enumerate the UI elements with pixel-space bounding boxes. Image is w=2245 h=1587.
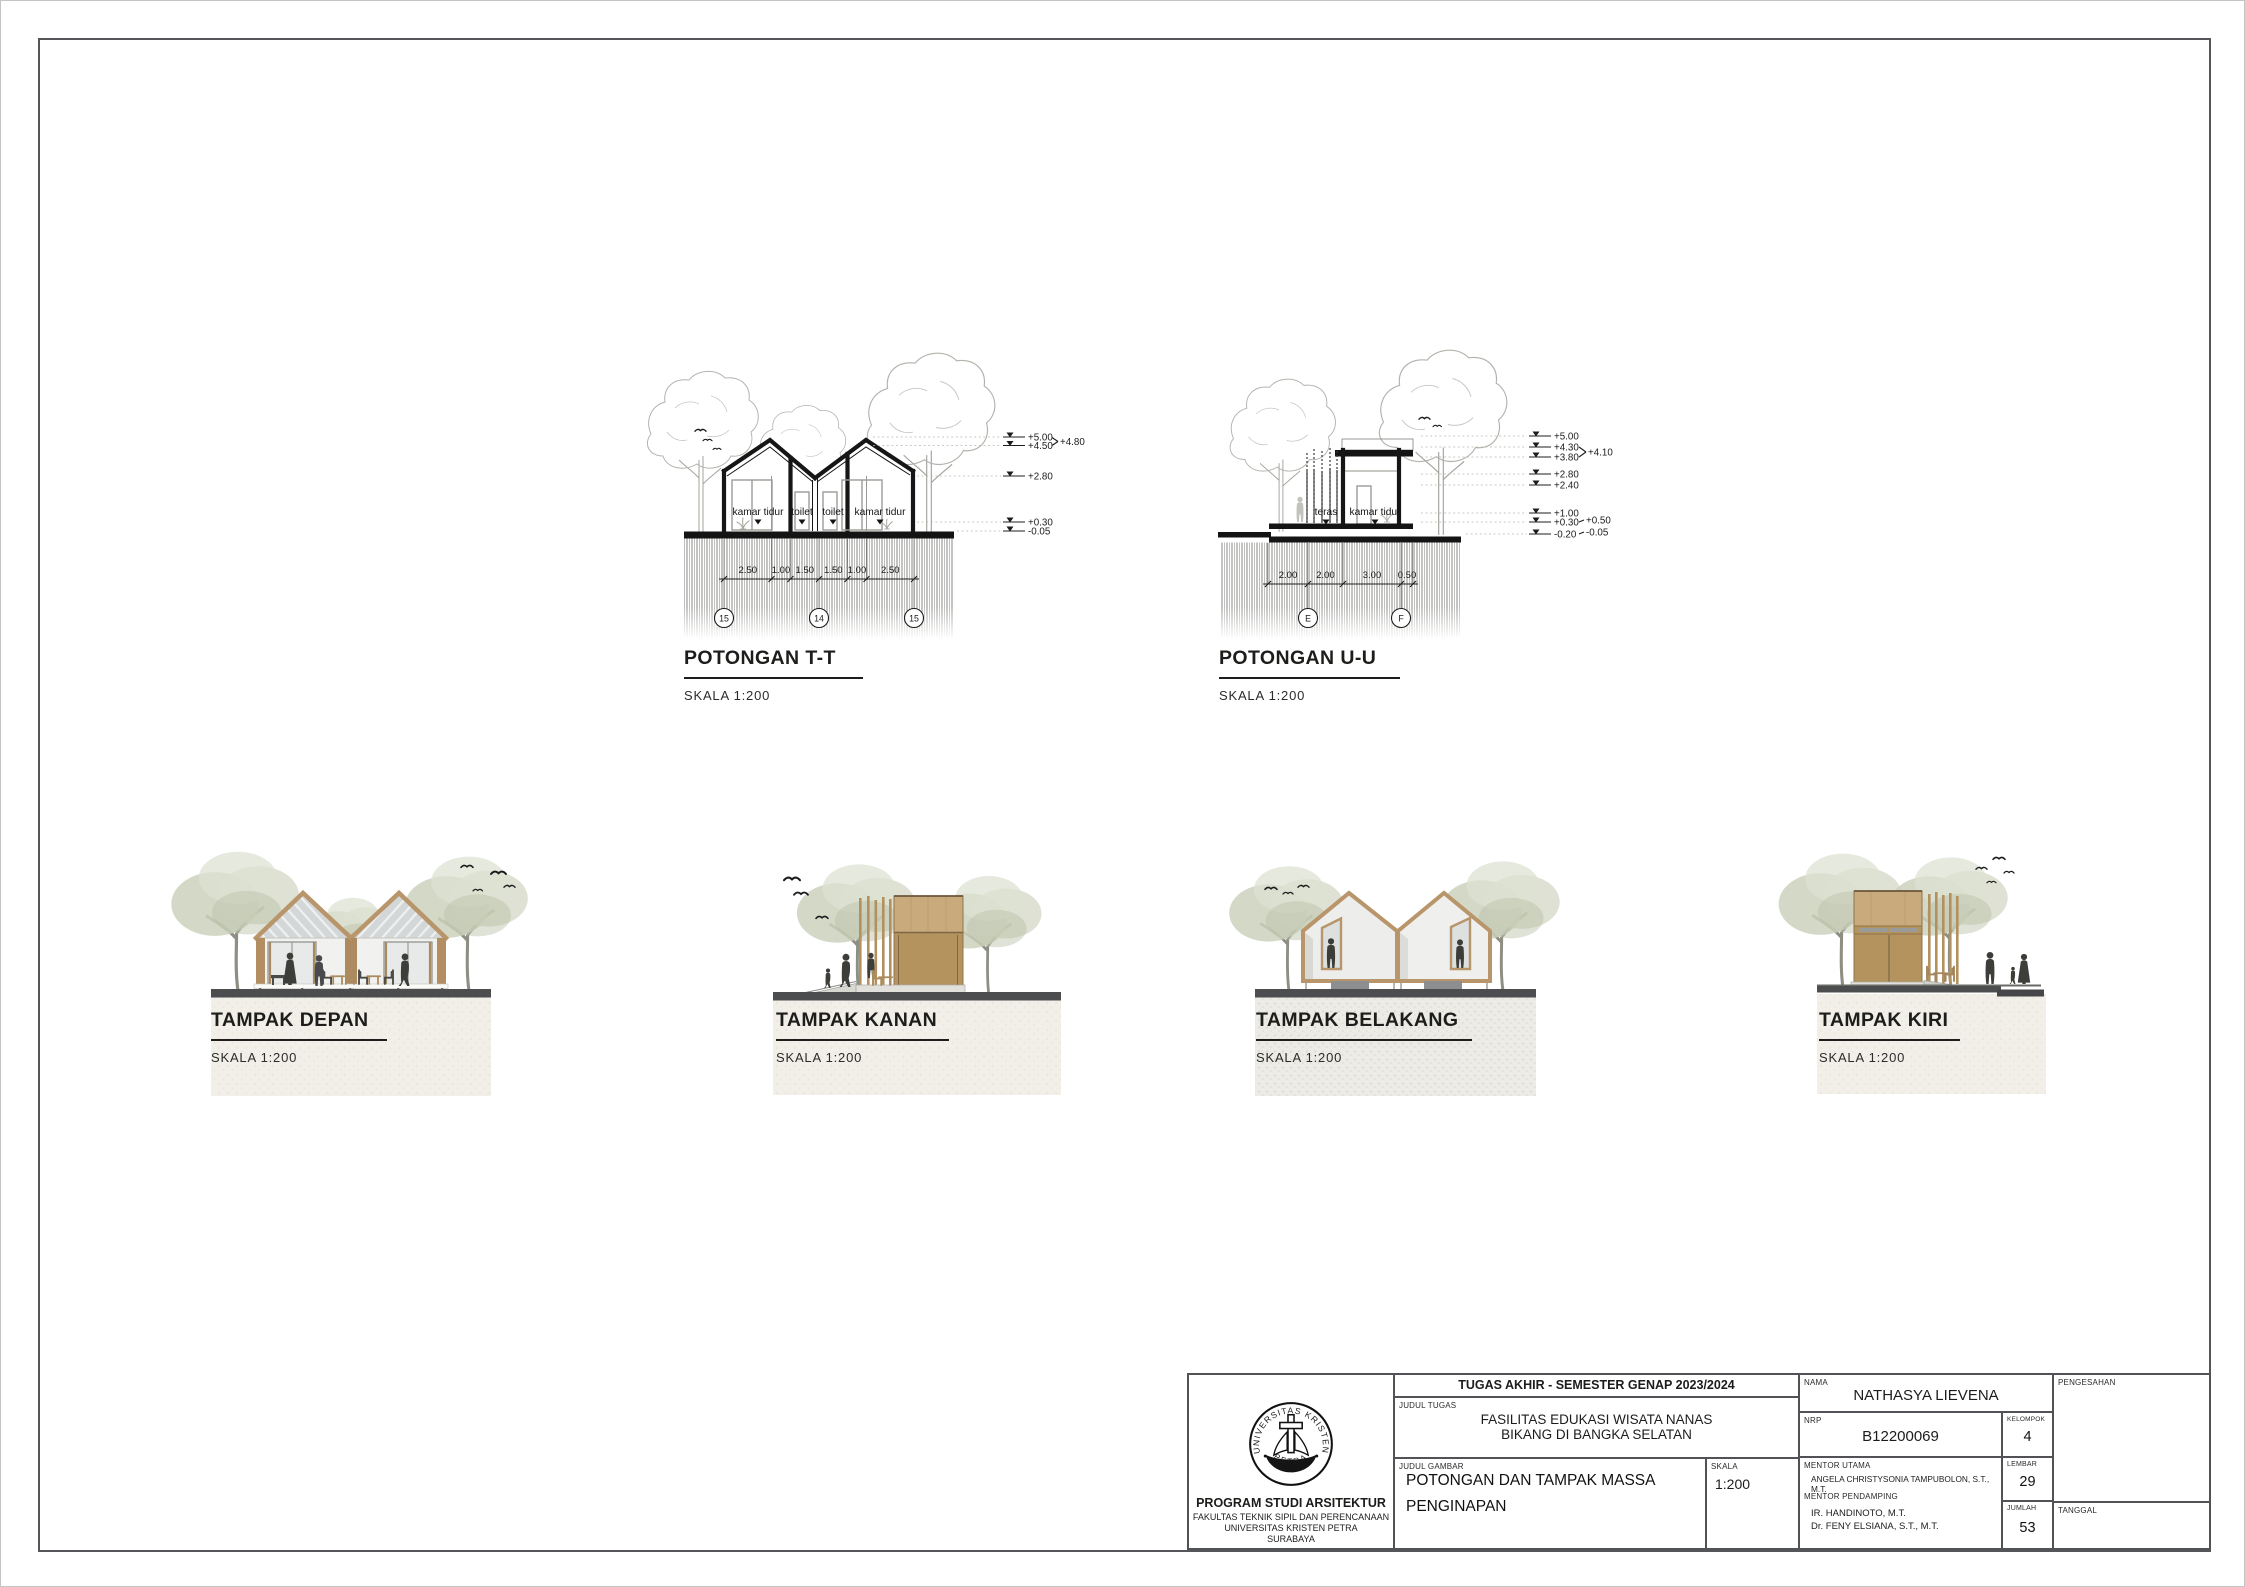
- potongan-uu-caption: POTONGAN U-U SKALA 1:200: [1219, 647, 1400, 703]
- people: [824, 953, 874, 988]
- caption-underline: [776, 1039, 949, 1041]
- tampak-depan-caption: TAMPAK DEPAN SKALA 1:200: [211, 1009, 387, 1065]
- dim-label: 2.50: [739, 565, 758, 576]
- level-label: +2.80: [1028, 472, 1053, 483]
- level-label: +0.50: [1586, 516, 1611, 527]
- tampak-kiri-caption: TAMPAK KIRI SKALA 1:200: [1819, 1009, 1960, 1065]
- level-label: +4.80: [1060, 437, 1085, 448]
- ground-band: [1255, 989, 1536, 998]
- level-label: +4.50: [1028, 441, 1053, 452]
- sheet-border-frame: [38, 38, 2211, 1552]
- caption-underline: [1819, 1039, 1960, 1041]
- grid-label: F: [1398, 614, 1404, 624]
- room-label: teras: [1315, 507, 1338, 518]
- potongan-uu-drawing: teras kamar tidur 2.00 2.00 3.00 0.50: [1136, 376, 1641, 651]
- room-label: toilet: [822, 507, 844, 518]
- tampak-belakang-caption: TAMPAK BELAKANG SKALA 1:200: [1256, 1009, 1472, 1065]
- dim-label: 3.00: [1363, 570, 1382, 581]
- mentor-pendamping-2: Dr. FENY ELSIANA, S.T., M.T.: [1811, 1521, 1939, 1532]
- dim-label: 1.50: [824, 565, 843, 576]
- mentor-utama-value: ANGELA CHRISTYSONIA TAMPUBOLON, S.T., M.…: [1811, 1474, 2001, 1494]
- titleblock-kelompok-cell: KELOMPOK 4: [2001, 1411, 2054, 1458]
- drawing-sheet: kamar tidur toilet toilet kamar tidur: [0, 0, 2245, 1587]
- mentor-pendamping-1: IR. HANDINOTO, M.T.: [1811, 1508, 1906, 1519]
- kelompok-value: 4: [2003, 1429, 2052, 1445]
- titleblock-pengesahan-cell: PENGESAHAN: [2052, 1373, 2211, 1503]
- mentor-pendamping-label: MENTOR PENDAMPING: [1804, 1492, 1898, 1501]
- caption-underline: [1219, 677, 1400, 679]
- level-label: -0.20: [1554, 530, 1577, 541]
- room-label: kamar tidur: [733, 507, 785, 518]
- grid-label: 14: [814, 614, 824, 624]
- titleblock-judul-tugas-cell: JUDUL TUGAS FASILITAS EDUKASI WISATA NAN…: [1393, 1396, 1800, 1459]
- logo-cross-vertical: [1288, 1415, 1294, 1453]
- tampak-belakang-scale: SKALA 1:200: [1256, 1050, 1472, 1065]
- judul-tugas-line1: FASILITAS EDUKASI WISATA NANAS: [1395, 1412, 1798, 1427]
- dim-label: 2.00: [1279, 570, 1298, 581]
- ground-band: [773, 992, 1061, 1001]
- level-label: +5.00: [1554, 432, 1579, 443]
- titleblock-jumlah-cell: JUMLAH 53: [2001, 1500, 2054, 1550]
- tampak-depan-title: TAMPAK DEPAN: [211, 1009, 387, 1032]
- titleblock-nrp-cell: NRP B12200069: [1798, 1411, 2003, 1458]
- tampak-kanan-title: TAMPAK KANAN: [776, 1009, 949, 1032]
- tampak-kanan-caption: TAMPAK KANAN SKALA 1:200: [776, 1009, 949, 1065]
- level-label: +0.30: [1554, 518, 1579, 529]
- jumlah-label: JUMLAH: [2007, 1505, 2036, 1512]
- dim-label: 2.00: [1316, 570, 1335, 581]
- potongan-tt-title: POTONGAN T-T: [684, 647, 863, 670]
- jumlah-value: 53: [2003, 1520, 2052, 1536]
- potongan-tt-scale: SKALA 1:200: [684, 688, 863, 703]
- people: [1986, 952, 2031, 984]
- grid-label: E: [1305, 614, 1311, 624]
- titleblock-skala-cell: SKALA 1:200: [1705, 1457, 1800, 1550]
- judul-tugas-label: JUDUL TUGAS: [1399, 1401, 1456, 1410]
- birds: [695, 429, 721, 449]
- mentor-utama-label: MENTOR UTAMA: [1804, 1461, 1871, 1470]
- caption-underline: [1256, 1039, 1472, 1041]
- caption-underline: [211, 1039, 387, 1041]
- institution-program: PROGRAM STUDI ARSITEKTUR: [1196, 1496, 1386, 1510]
- titleblock-logo-cell: UNIVERSITAS KRISTEN PETRA PROGRAM STUDI …: [1187, 1373, 1395, 1550]
- project-header: TUGAS AKHIR - SEMESTER GENAP 2023/2024: [1395, 1378, 1798, 1392]
- nrp-label: NRP: [1804, 1416, 1822, 1425]
- level-label: +4.10: [1588, 448, 1613, 459]
- judul-gambar-line1: POTONGAN DAN TAMPAK MASSA: [1406, 1472, 1655, 1490]
- houses: [1303, 893, 1490, 990]
- skala-label: SKALA: [1711, 1462, 1738, 1471]
- dim-label: 1.50: [796, 565, 815, 576]
- level-label: +2.40: [1554, 481, 1579, 492]
- pengesahan-label: PENGESAHAN: [2058, 1378, 2116, 1387]
- grid-label: 15: [909, 614, 919, 624]
- skala-value: 1:200: [1715, 1476, 1750, 1492]
- wood-box: [894, 896, 963, 995]
- institution-university: UNIVERSITAS KRISTEN PETRA: [1193, 1523, 1389, 1534]
- room-label: kamar tidur: [1350, 507, 1402, 518]
- dim-label: 1.00: [848, 565, 867, 576]
- tampak-kiri-title: TAMPAK KIRI: [1819, 1009, 1960, 1032]
- room-label: kamar tidur: [855, 507, 907, 518]
- room-label: toilet: [791, 507, 813, 518]
- tanggal-label: TANGGAL: [2058, 1506, 2097, 1515]
- level-label: -0.05: [1586, 528, 1609, 539]
- level-label: -0.05: [1028, 527, 1051, 538]
- titleblock-nama-cell: NAMA NATHASYA LIEVENA: [1798, 1373, 2054, 1413]
- dim-label: 0.50: [1398, 570, 1417, 581]
- institution-faculty: FAKULTAS TEKNIK SIPIL DAN PERENCANAAN: [1193, 1512, 1389, 1523]
- level-label: +2.80: [1554, 470, 1579, 481]
- university-logo: UNIVERSITAS KRISTEN PETRA: [1248, 1401, 1334, 1487]
- logo-cross-horizontal: [1280, 1423, 1302, 1429]
- titleblock-tanggal-cell: TANGGAL: [2052, 1501, 2211, 1550]
- judul-gambar-line2: PENGINAPAN: [1406, 1498, 1655, 1516]
- caption-underline: [684, 677, 863, 679]
- ground-band: [211, 989, 491, 998]
- tampak-depan-scale: SKALA 1:200: [211, 1050, 387, 1065]
- potongan-uu-scale: SKALA 1:200: [1219, 688, 1400, 703]
- tampak-kiri-scale: SKALA 1:200: [1819, 1050, 1960, 1065]
- dim-label: 1.00: [772, 565, 791, 576]
- judul-tugas-line2: BIKANG DI BANGKA SELATAN: [1395, 1427, 1798, 1442]
- lembar-value: 29: [2003, 1474, 2052, 1490]
- titleblock-lembar-cell: LEMBAR 29: [2001, 1456, 2054, 1502]
- lembar-label: LEMBAR: [2007, 1461, 2037, 1468]
- level-markers: +5.00 +4.30 +4.10 +3.80 +2.80 +2.40 +1.0…: [1421, 432, 1613, 541]
- dim-label: 2.50: [881, 565, 900, 576]
- potongan-uu-title: POTONGAN U-U: [1219, 647, 1400, 670]
- titleblock-mentor-cell: MENTOR UTAMA ANGELA CHRISTYSONIA TAMPUBO…: [1798, 1456, 2003, 1550]
- potongan-tt-caption: POTONGAN T-T SKALA 1:200: [684, 647, 863, 703]
- nama-label: NAMA: [1804, 1378, 1828, 1387]
- nama-value: NATHASYA LIEVENA: [1800, 1387, 2052, 1404]
- titleblock-judul-gambar-cell: JUDUL GAMBAR POTONGAN DAN TAMPAK MASSA P…: [1393, 1457, 1707, 1550]
- birds: [1419, 417, 1442, 426]
- institution-city: SURABAYA: [1193, 1534, 1389, 1545]
- nrp-value: B12200069: [1800, 1428, 2001, 1445]
- tampak-kanan-scale: SKALA 1:200: [776, 1050, 949, 1065]
- titleblock-header-cell: TUGAS AKHIR - SEMESTER GENAP 2023/2024: [1393, 1373, 1800, 1398]
- level-label: +3.80: [1554, 453, 1579, 464]
- potongan-tt-drawing: kamar tidur toilet toilet kamar tidur: [616, 376, 1121, 651]
- judul-gambar-label: JUDUL GAMBAR: [1399, 1462, 1464, 1471]
- grid-label: 15: [719, 614, 729, 624]
- wood-box: [1854, 891, 1922, 991]
- tampak-belakang-title: TAMPAK BELAKANG: [1256, 1009, 1472, 1032]
- kelompok-label: KELOMPOK: [2007, 1416, 2045, 1423]
